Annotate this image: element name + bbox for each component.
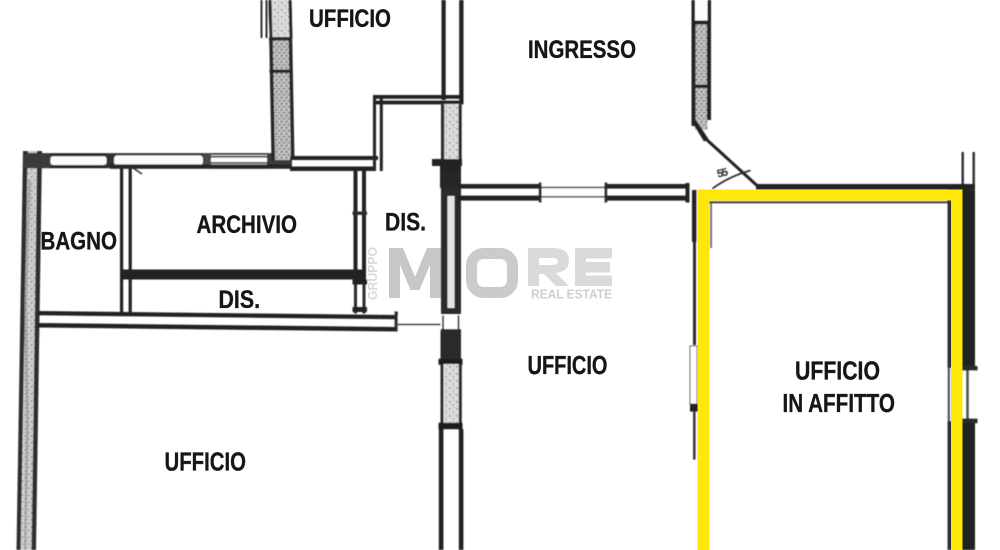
svg-text:UFFICIO: UFFICIO: [528, 350, 608, 380]
svg-text:UFFICIO: UFFICIO: [165, 447, 247, 477]
svg-text:UFFICIO: UFFICIO: [795, 356, 880, 386]
svg-text:55: 55: [716, 166, 730, 180]
svg-text:BAGNO: BAGNO: [41, 228, 118, 256]
svg-text:DIS.: DIS.: [385, 209, 426, 237]
svg-text:INGRESSO: INGRESSO: [528, 36, 636, 64]
svg-text:UFFICIO: UFFICIO: [309, 5, 391, 33]
svg-text:DIS.: DIS.: [219, 286, 261, 314]
svg-text:GRUPPO: GRUPPO: [366, 247, 380, 300]
svg-text:ARCHIVIO: ARCHIVIO: [197, 211, 298, 239]
svg-text:IN AFFITTO: IN AFFITTO: [783, 388, 896, 418]
svg-text:REAL ESTATE: REAL ESTATE: [531, 287, 612, 302]
